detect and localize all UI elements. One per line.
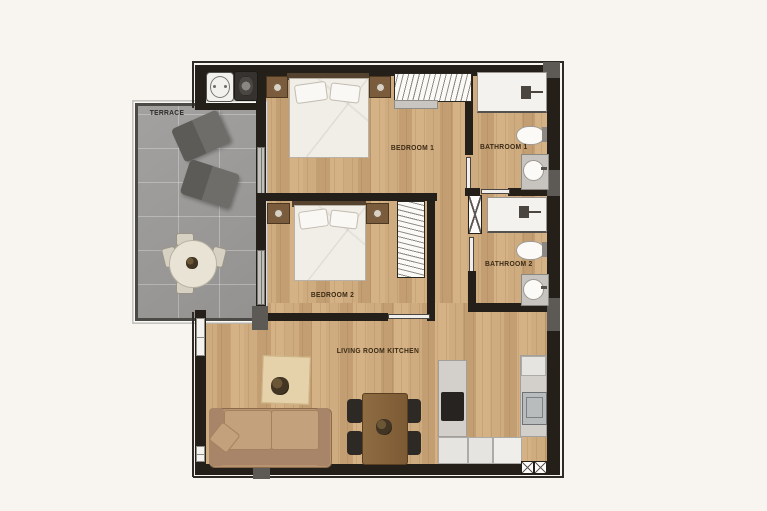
bedroom1-label: BEDROOM 1 (391, 145, 434, 152)
toilet-tank (542, 127, 547, 142)
toilet-icon (516, 241, 545, 260)
vent-hatch (534, 461, 547, 474)
wardrobe-icon (397, 201, 425, 278)
outline (192, 312, 194, 477)
wardrobe-icon (394, 73, 472, 102)
toilet-tank (542, 242, 547, 257)
door-leaf-bathroom1 (481, 189, 510, 194)
outline (192, 61, 194, 108)
outline (193, 61, 564, 63)
shaft (468, 195, 482, 234)
dishwasher-icon (493, 437, 522, 464)
faucet-icon (541, 286, 547, 289)
sofa-back (222, 448, 317, 465)
cooktop-icon (441, 392, 464, 421)
vent-hatch (521, 461, 534, 474)
centerpiece-plant-icon (376, 419, 392, 435)
kitchen-cabinet (468, 437, 493, 464)
kitchen-cabinet (438, 437, 468, 464)
bedroom2-label: BEDROOM 2 (311, 292, 354, 299)
fridge-icon (521, 356, 546, 376)
shelf (394, 100, 438, 109)
toilet-icon (516, 126, 545, 145)
plant-icon (271, 377, 289, 395)
sink-icon (523, 160, 544, 181)
wall-utility-bottom (195, 103, 266, 110)
sink-icon (523, 279, 544, 300)
shower-head-icon (521, 86, 531, 99)
dryer-icon (234, 71, 258, 101)
floor-plan: TERRACE (0, 0, 767, 511)
wall-bed2-bottom (256, 313, 388, 321)
nightstand-icon (266, 76, 288, 98)
outline (562, 61, 564, 477)
shower-head-icon (519, 206, 529, 218)
terrace-slider (252, 306, 268, 330)
chair-icon (347, 399, 363, 423)
terrace-label: TERRACE (150, 110, 185, 117)
washing-machine-icon (206, 72, 234, 102)
bathroom1-label: BATHROOM 1 (480, 144, 528, 151)
window (196, 318, 205, 356)
wall-bed1-bed2 (256, 193, 437, 201)
faucet-icon (541, 167, 547, 170)
chair-icon (347, 431, 363, 455)
nightstand-icon (366, 203, 389, 224)
wall-bed2-right (427, 193, 435, 321)
pillow-icon (329, 82, 361, 104)
window (196, 446, 205, 462)
outline (193, 476, 564, 478)
bathroom2-label: BATHROOM 2 (485, 261, 533, 268)
shower-icon (487, 197, 547, 233)
door-leaf-bedroom2 (388, 314, 430, 319)
nightstand-icon (369, 76, 391, 98)
shower-arm (529, 211, 541, 213)
pillow-icon (329, 209, 359, 229)
door-leaf-bathroom2 (469, 237, 474, 272)
nightstand-icon (267, 203, 290, 224)
wall-right (547, 65, 560, 475)
terrace-door-bedroom1 (257, 147, 265, 195)
sofa-cushion (271, 410, 319, 450)
kitchen-sink-icon (522, 392, 547, 425)
table-plant-icon (186, 257, 198, 269)
shower-arm (531, 91, 543, 93)
terrace-door-bedroom2 (257, 250, 265, 305)
living-label: LIVING ROOM KITCHEN (337, 348, 419, 355)
